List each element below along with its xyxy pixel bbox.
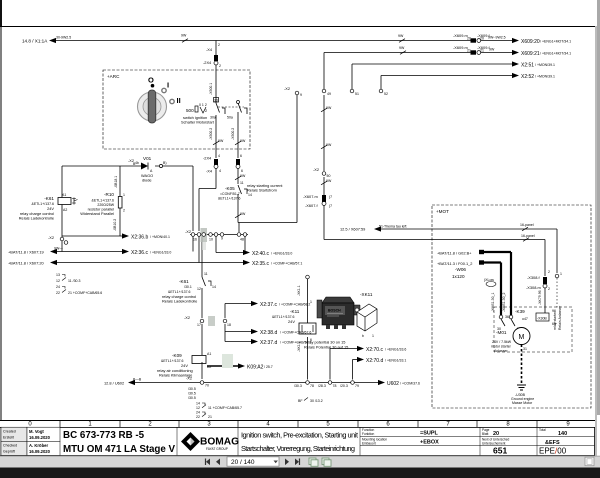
svg-text:BC 673-773 RB -5: BC 673-773 RB -5 xyxy=(63,430,145,441)
svg-text:Blatt: Blatt xyxy=(482,432,488,436)
svg-text:Geprüft: Geprüft xyxy=(3,450,15,454)
svg-text:A. Kröber: A. Kröber xyxy=(29,443,48,448)
svg-text:0: 0 xyxy=(28,422,32,428)
svg-text:BOMAG: BOMAG xyxy=(200,437,239,448)
svg-text:Einbauort: Einbauort xyxy=(362,442,376,446)
svg-text:=SUPL: =SUPL xyxy=(420,431,439,437)
svg-text:9: 9 xyxy=(566,422,570,428)
svg-text:Erstellt: Erstellt xyxy=(3,436,14,440)
svg-text:Ignition switch, Pre-excitatio: Ignition switch, Pre-excitation, Startin… xyxy=(241,431,358,440)
svg-text:6: 6 xyxy=(386,422,390,428)
svg-text:Funktion: Funktion xyxy=(362,432,374,436)
svg-text:EPE/00: EPE/00 xyxy=(539,447,567,456)
svg-text:3: 3 xyxy=(207,422,211,428)
svg-text:1: 1 xyxy=(88,422,92,428)
svg-text:8: 8 xyxy=(506,422,510,428)
svg-text:2: 2 xyxy=(148,422,152,428)
svg-text:M. Vogt: M. Vogt xyxy=(29,429,44,434)
svg-text:16.09.2020: 16.09.2020 xyxy=(29,435,51,440)
svg-text:Checked: Checked xyxy=(3,444,17,448)
svg-text:4: 4 xyxy=(266,422,270,428)
svg-text:FAYAT GROUP: FAYAT GROUP xyxy=(206,447,228,451)
svg-text:+EBOX: +EBOX xyxy=(420,440,439,446)
svg-text:20: 20 xyxy=(493,431,499,437)
svg-text:&EFS: &EFS xyxy=(545,440,560,446)
svg-text:651: 651 xyxy=(493,446,507,456)
svg-text:Created: Created xyxy=(3,430,16,434)
svg-text:Startschalter, Vorerregung, St: Startschalter, Vorerregung, Starteinrich… xyxy=(241,444,355,453)
svg-text:7: 7 xyxy=(446,422,450,428)
svg-text:140: 140 xyxy=(558,431,567,437)
svg-text:MTU OM 471 LA Stage V: MTU OM 471 LA Stage V xyxy=(63,444,175,455)
svg-text:Total: Total xyxy=(539,428,546,432)
svg-text:20 / 140: 20 / 140 xyxy=(231,459,255,466)
svg-text:16.09.2020: 16.09.2020 xyxy=(29,449,51,454)
svg-text:5: 5 xyxy=(326,422,330,428)
